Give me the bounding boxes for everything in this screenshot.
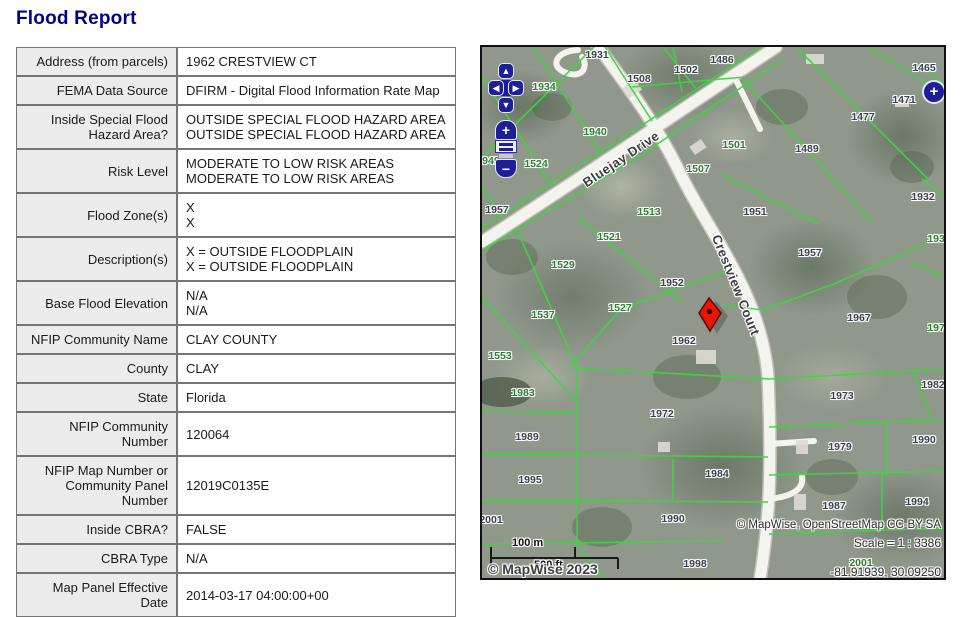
parcel-label: 1957 (798, 247, 821, 259)
parcel-label: 1990 (661, 513, 684, 525)
parcel-label: 1931 (585, 49, 608, 61)
zoom-control: + − (495, 120, 517, 178)
pan-left-button[interactable]: ◀ (488, 80, 504, 96)
row-label: FEMA Data Source (16, 76, 177, 105)
row-label: State (16, 383, 177, 412)
table-row: NFIP Map Number or Community Panel Numbe… (16, 456, 456, 515)
row-value: CLAY COUNTY (177, 325, 456, 354)
parcel-label: 1553 (488, 350, 511, 362)
map: 1931150815021486146514711477148915011507… (480, 45, 946, 580)
row-value: Florida (177, 383, 456, 412)
attribution-line: © MapWise, OpenStreetMap CC-BY-SA (737, 519, 941, 531)
parcel-label: 2001 (482, 514, 503, 526)
parcel-label: 1507 (686, 163, 709, 175)
expand-icon: + (924, 82, 944, 101)
row-label: County (16, 354, 177, 383)
pan-left-icon: ◀ (489, 81, 503, 95)
table-row: Inside Special Flood Hazard Area?OUTSIDE… (16, 105, 456, 149)
parcel-label: 1529 (551, 259, 574, 271)
table-row: Inside CBRA?FALSE (16, 515, 456, 544)
parcel-label: 1938 (927, 233, 944, 245)
row-value: X = OUTSIDE FLOODPLAIN X = OUTSIDE FLOOD… (177, 237, 456, 281)
parcel-label: 1957 (485, 204, 508, 216)
pan-down-icon: ▼ (499, 98, 513, 112)
table-row: Description(s)X = OUTSIDE FLOODPLAIN X =… (16, 237, 456, 281)
parcel-label: 1989 (515, 431, 538, 443)
table-row: NFIP Community Number120064 (16, 412, 456, 456)
parcel-label: 1951 (743, 206, 766, 218)
table-row: CBRA TypeN/A (16, 544, 456, 573)
row-label: NFIP Community Name (16, 325, 177, 354)
parcel-label: 1934 (532, 81, 555, 93)
parcel-label: 1527 (608, 302, 631, 314)
table-row: CountyCLAY (16, 354, 456, 383)
pan-up-button[interactable]: ▲ (498, 63, 514, 79)
map-scale-text: Scale = 1 : 3386 (854, 536, 941, 550)
parcel-label: 1984 (705, 468, 728, 480)
parcel-label: 1998 (683, 558, 706, 570)
map-coordinates: -81.91939, 30.09250 (830, 565, 941, 578)
parcel-label: 1979 (828, 441, 851, 453)
row-value: OUTSIDE SPECIAL FLOOD HAZARD AREA OUTSID… (177, 105, 456, 149)
parcel-label: 1972 (650, 408, 673, 420)
row-value: X X (177, 193, 456, 237)
parcel-label: 1932 (911, 191, 934, 203)
row-value: 1962 CRESTVIEW CT (177, 47, 456, 76)
parcel-label: 1477 (851, 111, 874, 123)
table-row: Base Flood ElevationN/A N/A (16, 281, 456, 325)
parcel-label: 1502 (674, 64, 697, 76)
parcel-label: 1940 (583, 126, 606, 138)
table-row: Map Panel Effective Date2014-03-17 04:00… (16, 573, 456, 617)
parcel-label: 1990 (912, 434, 935, 446)
table-row: StateFlorida (16, 383, 456, 412)
parcel-label: 1524 (524, 158, 547, 170)
row-label: Base Flood Elevation (16, 281, 177, 325)
row-label: Flood Zone(s) (16, 193, 177, 237)
parcel-label: 1974 (927, 322, 944, 334)
parcel-label: 1501 (722, 139, 745, 151)
parcel-label: 1471 (892, 94, 915, 106)
parcel-label: 1983 (511, 387, 534, 399)
pan-down-button[interactable]: ▼ (498, 97, 514, 113)
row-value: 120064 (177, 412, 456, 456)
parcel-label: 1952 (660, 277, 683, 289)
row-label: Risk Level (16, 149, 177, 193)
zoom-in-icon: + (496, 121, 516, 139)
row-label: NFIP Map Number or Community Panel Numbe… (16, 456, 177, 515)
row-label: Address (from parcels) (16, 47, 177, 76)
parcel-label: 1513 (637, 206, 660, 218)
row-label: CBRA Type (16, 544, 177, 573)
row-label: Inside CBRA? (16, 515, 177, 544)
row-label: Inside Special Flood Hazard Area? (16, 105, 177, 149)
row-value: DFIRM - Digital Flood Information Rate M… (177, 76, 456, 105)
parcel-label: 1982 (921, 379, 944, 391)
table-row: Address (from parcels)1962 CRESTVIEW CT (16, 47, 456, 76)
flood-report-table-body: Address (from parcels)1962 CRESTVIEW CTF… (16, 47, 456, 617)
page-title: Flood Report (16, 8, 137, 30)
zoom-slider-handle[interactable] (495, 140, 517, 153)
row-value: CLAY (177, 354, 456, 383)
zoom-out-icon: − (496, 160, 516, 178)
flood-report-page: Flood Report Address (from parcels)1962 … (0, 0, 962, 600)
zoom-out-button[interactable]: − (495, 159, 517, 178)
row-value: 12019C0135E (177, 456, 456, 515)
row-label: NFIP Community Number (16, 412, 177, 456)
parcel-label: 1973 (830, 390, 853, 402)
parcel-label: 1489 (795, 143, 818, 155)
pan-up-icon: ▲ (499, 64, 513, 78)
parcel-label: 1994 (905, 496, 928, 508)
expand-map-button[interactable]: + (922, 80, 944, 104)
table-row: Risk LevelMODERATE TO LOW RISK AREAS MOD… (16, 149, 456, 193)
parcel-label: 1987 (822, 500, 845, 512)
table-row: FEMA Data SourceDFIRM - Digital Flood In… (16, 76, 456, 105)
parcel-label: 1465 (912, 62, 935, 74)
location-marker-icon (687, 295, 731, 341)
parcel-label: 1486 (710, 54, 733, 66)
flood-report-table: Address (from parcels)1962 CRESTVIEW CTF… (16, 47, 456, 617)
row-value: MODERATE TO LOW RISK AREAS MODERATE TO L… (177, 149, 456, 193)
row-value: N/A (177, 544, 456, 573)
pan-right-button[interactable]: ▶ (508, 80, 524, 96)
row-value: 2014-03-17 04:00:00+00 (177, 573, 456, 617)
parcel-label: 1995 (518, 474, 541, 486)
table-row: Flood Zone(s)X X (16, 193, 456, 237)
table-row: NFIP Community NameCLAY COUNTY (16, 325, 456, 354)
row-value: FALSE (177, 515, 456, 544)
parcel-label: 1537 (531, 309, 554, 321)
parcel-label: 1508 (627, 73, 650, 85)
row-label: Map Panel Effective Date (16, 573, 177, 617)
pan-right-icon: ▶ (509, 81, 523, 95)
row-label: Description(s) (16, 237, 177, 281)
pan-control: ▲ ◀ ▶ ▼ (488, 61, 524, 115)
parcel-label: 1967 (847, 312, 870, 324)
parcel-label: 1521 (597, 231, 620, 243)
zoom-in-button[interactable]: + (495, 120, 517, 140)
row-value: N/A N/A (177, 281, 456, 325)
map-viewport[interactable]: 1931150815021486146514711477148915011507… (482, 47, 944, 578)
scale-metric-label: 100 m (512, 537, 543, 549)
mapwise-copyright: © MapWise 2023 (488, 561, 598, 577)
